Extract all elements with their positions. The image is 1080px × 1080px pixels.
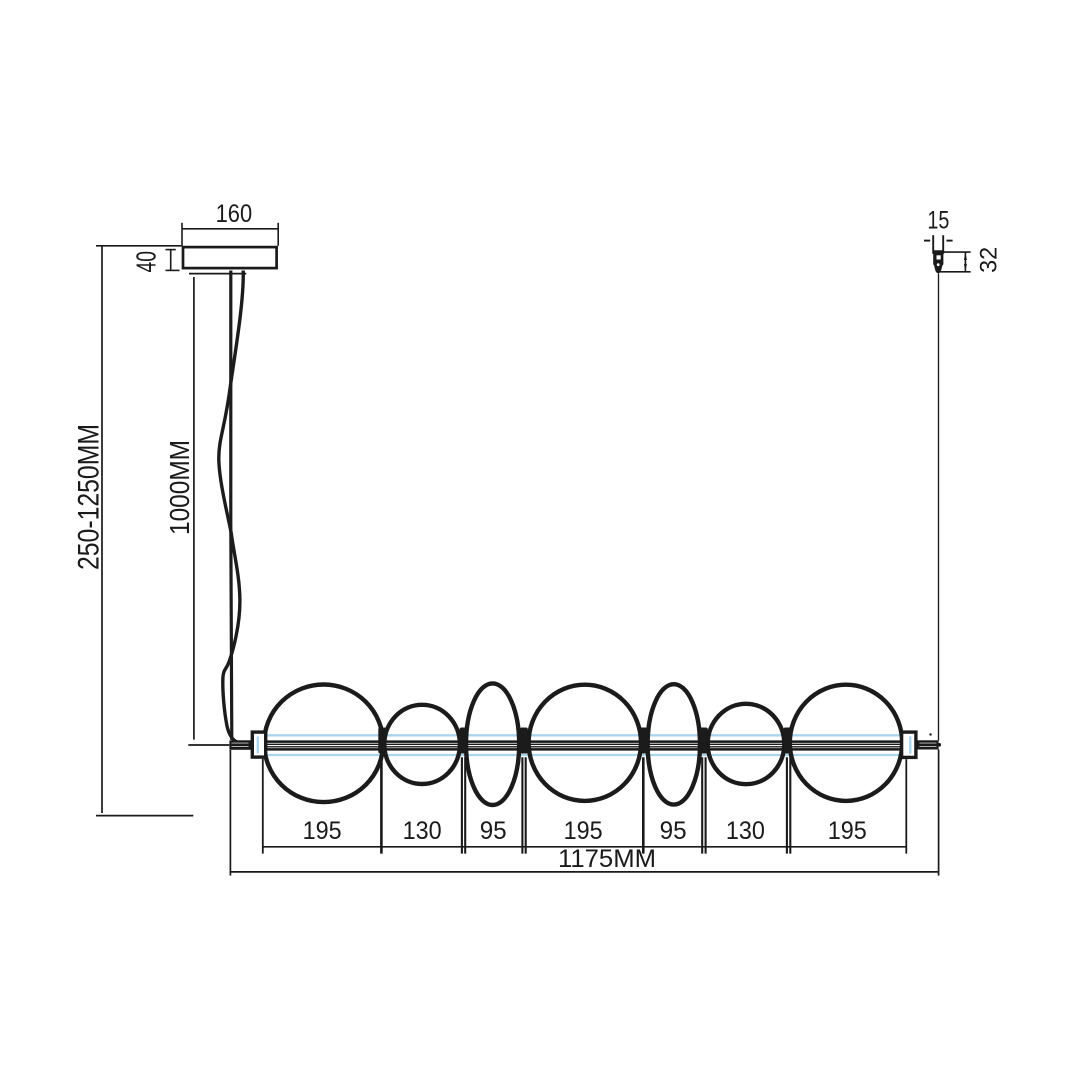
svg-text:15: 15 [927, 207, 949, 235]
svg-text:1000MM: 1000MM [164, 440, 195, 535]
svg-text:95: 95 [660, 817, 687, 845]
svg-text:195: 195 [828, 817, 867, 845]
svg-text:32: 32 [975, 247, 1002, 273]
svg-text:195: 195 [303, 817, 342, 845]
svg-text:130: 130 [403, 817, 442, 845]
svg-text:250-1250MM: 250-1250MM [73, 424, 106, 570]
svg-text:160: 160 [216, 200, 253, 228]
svg-text:130: 130 [726, 817, 765, 845]
svg-text:95: 95 [480, 817, 507, 845]
svg-text:40: 40 [131, 251, 162, 273]
svg-text:195: 195 [564, 817, 603, 845]
svg-text:1175MM: 1175MM [558, 845, 656, 873]
